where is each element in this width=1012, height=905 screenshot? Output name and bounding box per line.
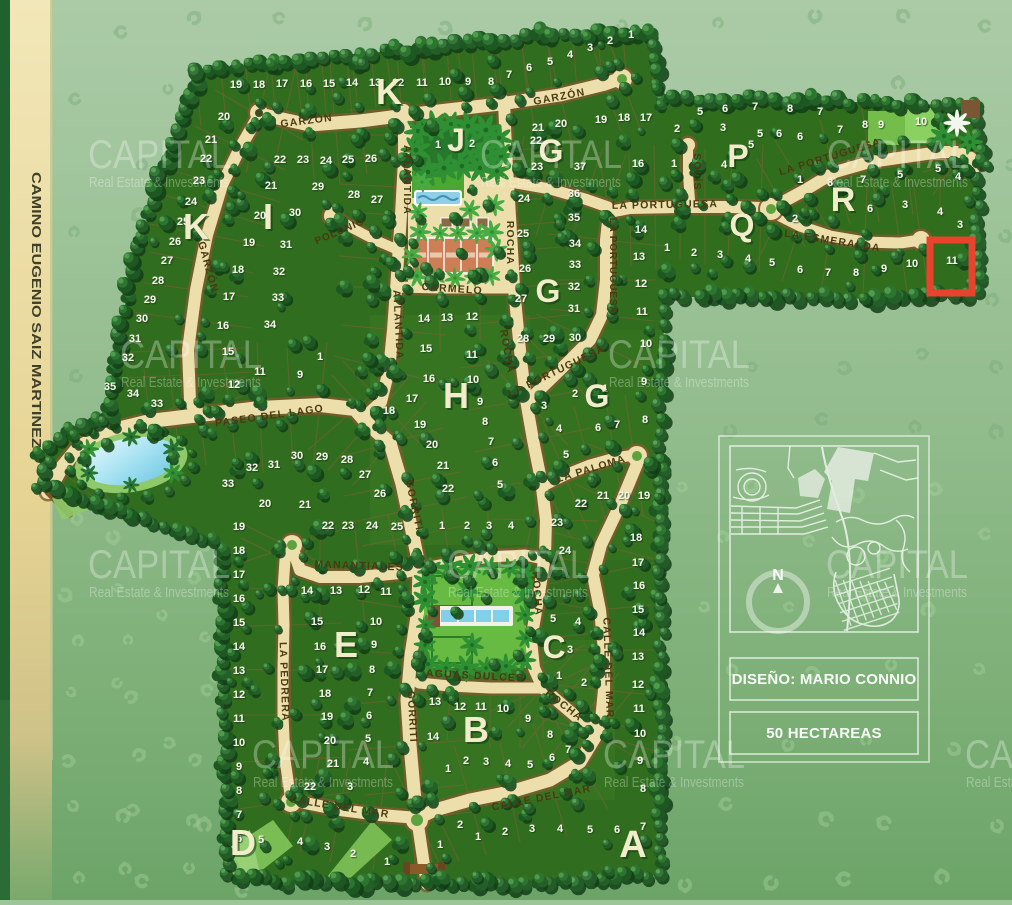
svg-text:3: 3 xyxy=(483,756,489,768)
svg-text:22: 22 xyxy=(442,483,454,495)
svg-text:ROCHA: ROCHA xyxy=(504,221,516,266)
svg-text:30: 30 xyxy=(291,450,303,462)
svg-text:CAPITAL: CAPITAL xyxy=(603,733,745,777)
svg-text:10: 10 xyxy=(370,616,382,628)
svg-text:21: 21 xyxy=(437,460,449,472)
svg-text:21: 21 xyxy=(597,490,609,502)
svg-text:20: 20 xyxy=(218,111,230,123)
svg-text:14: 14 xyxy=(346,77,359,89)
svg-text:Real Estate & Investments: Real Estate & Investments xyxy=(604,775,744,791)
svg-text:8: 8 xyxy=(236,785,242,797)
svg-text:29: 29 xyxy=(312,181,324,193)
svg-text:7: 7 xyxy=(614,419,620,431)
svg-text:20: 20 xyxy=(426,439,438,451)
svg-text:4: 4 xyxy=(567,49,574,61)
svg-text:8: 8 xyxy=(369,664,375,676)
svg-text:13: 13 xyxy=(441,312,453,324)
svg-text:25: 25 xyxy=(391,521,403,533)
svg-text:14: 14 xyxy=(418,313,431,325)
svg-text:28: 28 xyxy=(348,189,360,201)
svg-text:22: 22 xyxy=(322,520,334,532)
svg-text:6: 6 xyxy=(526,62,532,74)
svg-text:Real Estate & Investments: Real Estate & Investments xyxy=(121,375,261,391)
svg-text:CAPITAL: CAPITAL xyxy=(965,733,1012,777)
svg-text:2: 2 xyxy=(674,123,680,135)
svg-text:6: 6 xyxy=(867,203,873,215)
svg-text:25: 25 xyxy=(342,154,354,166)
svg-text:19: 19 xyxy=(233,521,245,533)
svg-text:9: 9 xyxy=(297,369,303,381)
svg-text:5: 5 xyxy=(547,56,553,68)
svg-text:33: 33 xyxy=(151,398,163,410)
svg-text:8: 8 xyxy=(862,119,868,131)
svg-text:31: 31 xyxy=(280,239,292,251)
svg-text:9: 9 xyxy=(878,119,884,131)
svg-text:18: 18 xyxy=(232,264,244,276)
svg-text:18: 18 xyxy=(319,688,331,700)
svg-text:3: 3 xyxy=(720,122,726,134)
svg-text:4: 4 xyxy=(745,253,752,265)
svg-text:8: 8 xyxy=(482,416,488,428)
svg-text:5: 5 xyxy=(587,824,593,836)
svg-text:8: 8 xyxy=(488,76,494,88)
svg-text:12: 12 xyxy=(632,679,644,691)
svg-text:30: 30 xyxy=(136,313,148,325)
svg-text:15: 15 xyxy=(311,616,323,628)
svg-text:11: 11 xyxy=(380,586,392,598)
svg-text:DISEÑO: MARIO CONNIO: DISEÑO: MARIO CONNIO xyxy=(732,670,917,688)
svg-text:1: 1 xyxy=(671,158,677,170)
svg-text:34: 34 xyxy=(569,238,582,250)
svg-text:29: 29 xyxy=(543,333,555,345)
svg-text:3: 3 xyxy=(717,249,723,261)
svg-text:18: 18 xyxy=(630,532,642,544)
svg-text:23: 23 xyxy=(342,520,354,532)
svg-text:19: 19 xyxy=(243,237,255,249)
svg-text:4: 4 xyxy=(557,823,564,835)
svg-text:28: 28 xyxy=(152,275,164,287)
svg-text:11: 11 xyxy=(636,306,648,318)
svg-text:5: 5 xyxy=(497,479,503,491)
svg-text:15: 15 xyxy=(632,604,644,616)
svg-text:9: 9 xyxy=(236,761,242,773)
svg-text:6: 6 xyxy=(595,422,601,434)
svg-text:18: 18 xyxy=(618,112,630,124)
svg-text:G: G xyxy=(585,378,610,414)
svg-text:16: 16 xyxy=(423,373,435,385)
svg-text:4: 4 xyxy=(575,616,582,628)
svg-text:27: 27 xyxy=(515,293,527,305)
svg-text:Q: Q xyxy=(730,207,755,243)
svg-text:13: 13 xyxy=(330,585,342,597)
svg-text:30: 30 xyxy=(289,207,301,219)
svg-text:30: 30 xyxy=(569,332,581,344)
svg-text:10: 10 xyxy=(439,76,451,88)
svg-text:Real Estate & Investments: Real Estate & Investments xyxy=(609,375,749,391)
svg-text:29: 29 xyxy=(144,294,156,306)
svg-text:5: 5 xyxy=(550,613,556,625)
svg-text:G: G xyxy=(536,273,561,309)
svg-text:28: 28 xyxy=(341,454,353,466)
svg-text:16: 16 xyxy=(300,78,312,90)
svg-text:3: 3 xyxy=(567,644,573,656)
svg-text:CAPITAL: CAPITAL xyxy=(120,333,262,377)
svg-text:1: 1 xyxy=(556,670,562,682)
svg-text:27: 27 xyxy=(359,469,371,481)
svg-text:13: 13 xyxy=(429,696,441,708)
svg-text:2: 2 xyxy=(691,247,697,259)
svg-text:13: 13 xyxy=(632,651,644,663)
svg-text:4: 4 xyxy=(556,423,563,435)
svg-text:16: 16 xyxy=(633,580,645,592)
svg-text:4: 4 xyxy=(937,206,944,218)
svg-text:26: 26 xyxy=(169,236,181,248)
svg-text:24: 24 xyxy=(320,155,333,167)
svg-text:2: 2 xyxy=(572,388,578,400)
svg-text:K: K xyxy=(183,206,209,247)
svg-text:5: 5 xyxy=(697,106,703,118)
svg-text:34: 34 xyxy=(264,319,277,331)
svg-text:5: 5 xyxy=(769,257,775,269)
svg-text:27: 27 xyxy=(161,255,173,267)
svg-text:CAPITAL: CAPITAL xyxy=(826,543,968,587)
svg-text:16: 16 xyxy=(632,158,644,170)
svg-text:SOLÍS: SOLÍS xyxy=(691,153,704,191)
svg-text:Real Estate & Investments: Real Estate & Investments xyxy=(828,175,968,191)
svg-text:2: 2 xyxy=(502,826,508,838)
svg-text:33: 33 xyxy=(569,259,581,271)
svg-text:14: 14 xyxy=(635,224,648,236)
svg-text:21: 21 xyxy=(265,180,277,192)
svg-text:17: 17 xyxy=(276,78,288,90)
svg-text:CAPITAL: CAPITAL xyxy=(608,333,750,377)
svg-text:18: 18 xyxy=(253,79,265,91)
svg-text:9: 9 xyxy=(371,639,377,651)
svg-text:32: 32 xyxy=(246,462,258,474)
svg-text:I: I xyxy=(263,196,273,237)
svg-text:22: 22 xyxy=(575,498,587,510)
svg-text:6: 6 xyxy=(549,752,555,764)
svg-text:3: 3 xyxy=(324,841,330,853)
svg-text:Real Estate & Investments: Real Estate & Investments xyxy=(448,585,588,601)
svg-text:1: 1 xyxy=(439,520,445,532)
svg-text:4: 4 xyxy=(297,836,304,848)
svg-text:B: B xyxy=(463,709,489,750)
svg-text:7: 7 xyxy=(367,687,373,699)
svg-text:31: 31 xyxy=(568,303,580,315)
svg-text:2: 2 xyxy=(457,819,463,831)
svg-text:1: 1 xyxy=(475,831,481,843)
svg-text:50 HECTAREAS: 50 HECTAREAS xyxy=(766,725,881,742)
svg-text:6: 6 xyxy=(797,131,803,143)
svg-text:33: 33 xyxy=(222,478,234,490)
svg-text:6: 6 xyxy=(366,710,372,722)
svg-text:7: 7 xyxy=(752,101,758,113)
svg-text:CAPITAL: CAPITAL xyxy=(827,133,969,177)
svg-text:1: 1 xyxy=(317,351,323,363)
svg-text:20: 20 xyxy=(555,118,567,130)
svg-text:25: 25 xyxy=(517,228,529,240)
svg-text:20: 20 xyxy=(259,498,271,510)
svg-text:1: 1 xyxy=(384,856,390,868)
svg-text:14: 14 xyxy=(301,585,314,597)
svg-text:32: 32 xyxy=(273,266,285,278)
svg-text:14: 14 xyxy=(233,641,246,653)
svg-text:C: C xyxy=(542,629,565,665)
svg-text:17: 17 xyxy=(316,664,328,676)
svg-text:6: 6 xyxy=(492,457,498,469)
svg-text:24: 24 xyxy=(366,520,379,532)
svg-text:22: 22 xyxy=(274,154,286,166)
svg-text:28: 28 xyxy=(517,333,529,345)
svg-text:7: 7 xyxy=(506,69,512,81)
svg-text:7: 7 xyxy=(817,106,823,118)
svg-text:J: J xyxy=(447,122,465,158)
svg-text:20: 20 xyxy=(618,490,630,502)
svg-text:5: 5 xyxy=(258,834,264,846)
svg-text:35: 35 xyxy=(104,381,116,393)
svg-text:3: 3 xyxy=(957,219,963,231)
svg-text:3: 3 xyxy=(902,199,908,211)
svg-text:12: 12 xyxy=(358,584,370,596)
svg-text:26: 26 xyxy=(365,153,377,165)
svg-text:26: 26 xyxy=(519,263,531,275)
svg-text:9: 9 xyxy=(525,713,531,725)
svg-text:K: K xyxy=(376,71,402,112)
svg-text:21: 21 xyxy=(299,499,311,511)
svg-text:H: H xyxy=(443,375,469,416)
svg-text:1: 1 xyxy=(797,174,803,186)
svg-text:15: 15 xyxy=(233,617,245,629)
svg-text:6: 6 xyxy=(722,103,728,115)
svg-text:CAPITAL: CAPITAL xyxy=(88,133,230,177)
svg-text:11: 11 xyxy=(416,77,428,89)
svg-text:10: 10 xyxy=(497,703,509,715)
svg-text:5: 5 xyxy=(757,128,763,140)
svg-text:11: 11 xyxy=(466,349,478,361)
svg-text:35: 35 xyxy=(568,212,580,224)
svg-text:Real Estate & Investments: Real Estate & Investments xyxy=(253,775,393,791)
svg-text:7: 7 xyxy=(236,809,242,821)
svg-text:32: 32 xyxy=(568,281,580,293)
svg-text:19: 19 xyxy=(414,419,426,431)
svg-text:3: 3 xyxy=(541,400,547,412)
svg-text:LA PORTUGUESA: LA PORTUGUESA xyxy=(612,198,718,212)
svg-text:CAPITAL: CAPITAL xyxy=(480,133,622,177)
svg-text:6: 6 xyxy=(797,264,803,276)
svg-text:Real Estate & Investments: Real Estate & Investments xyxy=(966,775,1012,791)
svg-text:14: 14 xyxy=(427,731,440,743)
svg-text:CAMINO EUGENIO SAIZ MARTINEZ: CAMINO EUGENIO SAIZ MARTINEZ xyxy=(29,172,43,448)
svg-text:1: 1 xyxy=(664,242,670,254)
svg-text:16: 16 xyxy=(314,641,326,653)
svg-text:7: 7 xyxy=(825,267,831,279)
svg-text:8: 8 xyxy=(547,729,553,741)
svg-text:9: 9 xyxy=(477,396,483,408)
svg-text:24: 24 xyxy=(518,193,531,205)
svg-text:P: P xyxy=(727,138,748,174)
svg-text:3: 3 xyxy=(587,42,593,54)
svg-text:CAPITAL: CAPITAL xyxy=(447,543,589,587)
svg-text:10: 10 xyxy=(906,258,918,270)
svg-text:16: 16 xyxy=(217,320,229,332)
svg-text:10: 10 xyxy=(233,737,245,749)
svg-text:7: 7 xyxy=(565,744,571,756)
svg-text:3: 3 xyxy=(529,823,535,835)
svg-text:Real Estate & Investments: Real Estate & Investments xyxy=(89,585,229,601)
svg-text:1: 1 xyxy=(437,839,443,851)
svg-text:D: D xyxy=(230,822,256,863)
svg-text:2: 2 xyxy=(792,213,798,225)
svg-text:CAPITAL: CAPITAL xyxy=(252,733,394,777)
svg-text:23: 23 xyxy=(297,154,309,166)
svg-text:N: N xyxy=(772,567,784,584)
svg-text:1: 1 xyxy=(628,29,634,41)
svg-text:29: 29 xyxy=(316,451,328,463)
svg-text:5: 5 xyxy=(527,759,533,771)
svg-text:12: 12 xyxy=(466,311,478,323)
svg-text:11: 11 xyxy=(946,255,958,267)
svg-text:15: 15 xyxy=(420,343,432,355)
svg-text:2: 2 xyxy=(464,520,470,532)
svg-text:17: 17 xyxy=(640,112,652,124)
svg-text:12: 12 xyxy=(233,689,245,701)
svg-text:13: 13 xyxy=(233,665,245,677)
svg-text:1: 1 xyxy=(445,763,451,775)
svg-text:23: 23 xyxy=(551,517,563,529)
svg-text:33: 33 xyxy=(272,292,284,304)
svg-text:7: 7 xyxy=(488,436,494,448)
svg-text:9: 9 xyxy=(881,263,887,275)
svg-text:16: 16 xyxy=(233,593,245,605)
svg-text:14: 14 xyxy=(633,627,646,639)
svg-text:18: 18 xyxy=(383,405,395,417)
svg-text:3: 3 xyxy=(486,520,492,532)
svg-text:26: 26 xyxy=(374,488,386,500)
svg-text:A: A xyxy=(619,824,646,866)
svg-text:11: 11 xyxy=(233,713,245,725)
svg-text:12: 12 xyxy=(635,278,647,290)
svg-text:5: 5 xyxy=(563,449,569,461)
svg-text:19: 19 xyxy=(321,711,333,723)
svg-text:17: 17 xyxy=(632,557,644,569)
svg-text:4: 4 xyxy=(508,520,515,532)
svg-text:17: 17 xyxy=(406,393,418,405)
svg-text:Real Estate & Investments: Real Estate & Investments xyxy=(481,175,621,191)
svg-text:27: 27 xyxy=(371,194,383,206)
svg-text:15: 15 xyxy=(323,78,335,90)
svg-text:4: 4 xyxy=(505,758,512,770)
svg-text:17: 17 xyxy=(223,291,235,303)
svg-text:2: 2 xyxy=(350,848,356,860)
svg-text:2: 2 xyxy=(581,677,587,689)
svg-text:CAPITAL: CAPITAL xyxy=(88,543,230,587)
svg-text:8: 8 xyxy=(642,414,648,426)
svg-text:8: 8 xyxy=(787,103,793,115)
svg-text:9: 9 xyxy=(465,76,471,88)
svg-text:19: 19 xyxy=(230,79,242,91)
svg-text:Real Estate & Investments: Real Estate & Investments xyxy=(89,175,229,191)
svg-text:11: 11 xyxy=(633,703,645,715)
svg-text:13: 13 xyxy=(633,251,645,263)
svg-text:2: 2 xyxy=(463,755,469,767)
svg-text:ATLÁNTIDA: ATLÁNTIDA xyxy=(401,145,414,215)
svg-text:LA PORTUGUESA: LA PORTUGUESA xyxy=(607,218,618,315)
svg-text:2: 2 xyxy=(607,35,613,47)
svg-text:31: 31 xyxy=(268,459,280,471)
svg-text:17: 17 xyxy=(233,569,245,581)
svg-text:19: 19 xyxy=(638,490,650,502)
svg-text:6: 6 xyxy=(776,128,782,140)
svg-text:E: E xyxy=(334,624,358,665)
svg-text:19: 19 xyxy=(595,114,607,126)
svg-text:8: 8 xyxy=(853,267,859,279)
svg-text:1: 1 xyxy=(435,139,441,151)
svg-text:2: 2 xyxy=(469,138,475,150)
svg-text:10: 10 xyxy=(915,116,927,128)
svg-text:18: 18 xyxy=(233,545,245,557)
